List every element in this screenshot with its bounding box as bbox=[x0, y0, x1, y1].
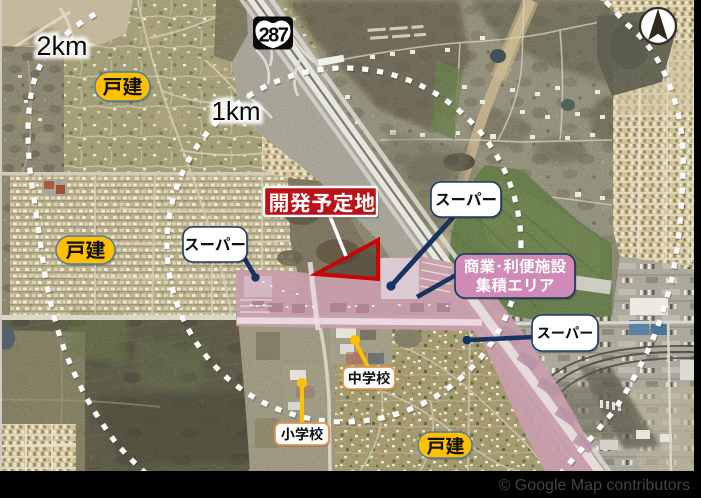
svg-text:287: 287 bbox=[259, 25, 289, 47]
svg-text:2km: 2km bbox=[36, 31, 87, 61]
svg-text:© Google Map contributors: © Google Map contributors bbox=[499, 477, 690, 494]
svg-text:1km: 1km bbox=[211, 96, 260, 126]
